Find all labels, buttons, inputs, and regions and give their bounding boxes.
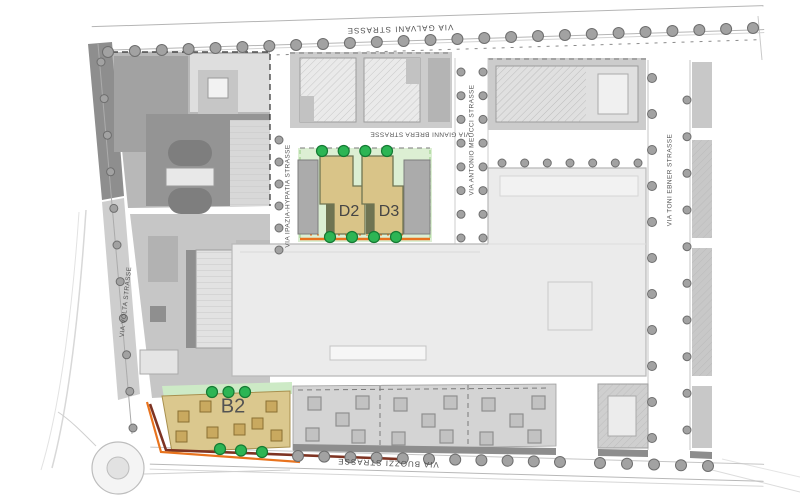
parcel-label-d2: D2 [339,203,359,221]
block-south-row [293,384,556,455]
site-plan-canvas [0,0,800,499]
block-northwest [112,52,270,214]
street-label-ipazia-hypatia: VIA IPAZIA-HYPATIA STRASSE [285,144,292,247]
block-north-middle [290,52,452,128]
block-northeast [488,58,646,130]
street-label-toni-ebner: VIA TONI EBNER STRASSE [667,134,674,226]
parcel-label-b2: B2 [221,396,245,419]
parcel-label-d3: D3 [379,203,399,221]
street-label-antonio-meucci: VIA ANTONIO MEUCCI STRASSE [469,84,476,195]
street-label-gianni-brera: VIA GIANNI BRERA STRASSE [370,131,470,138]
block-east-strip [692,62,712,448]
site-plan: VIA GALVANI STRASSE VIA VOLTA STRASSE VI… [0,0,800,499]
parcel-d2-d3 [298,148,432,242]
